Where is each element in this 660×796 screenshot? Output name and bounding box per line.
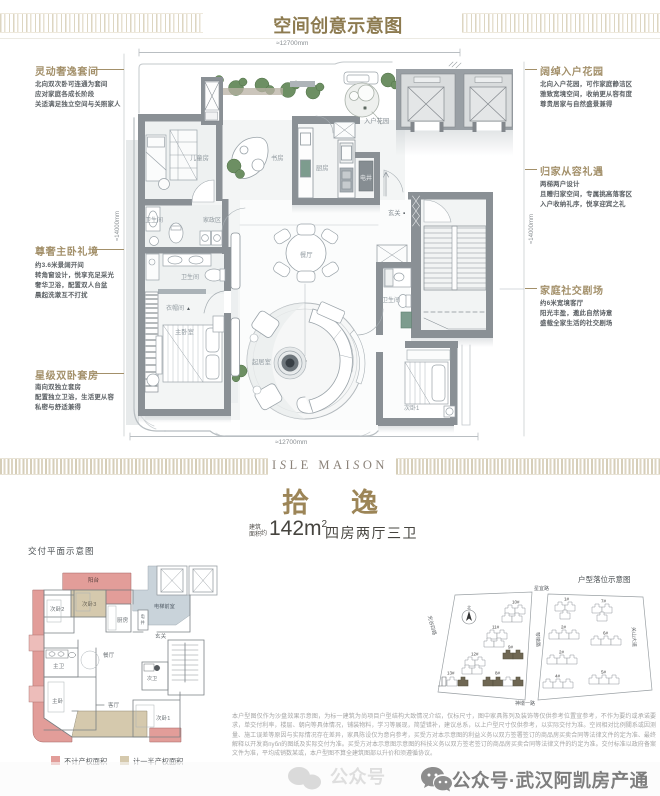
svg-text:电井: 电井 [360,174,372,182]
svg-text:次卧3: 次卧3 [82,600,96,608]
svg-text:12#: 12# [471,652,479,657]
svg-text:主卧室: 主卧室 [175,327,194,336]
svg-text:主卫: 主卫 [53,662,65,670]
svg-text:家政区: 家政区 [203,216,221,224]
svg-text:次卫: 次卫 [147,675,157,682]
svg-text:卫生间: 卫生间 [145,216,163,224]
svg-text:北: 北 [467,604,471,610]
svg-text:关山大道: 关山大道 [630,627,638,647]
svg-text:玄关: 玄关 [155,632,167,640]
svg-text:7#: 7# [601,599,607,604]
svg-text:厨房: 厨房 [117,616,129,624]
svg-text:入户花园: 入户花园 [364,116,389,125]
svg-text:光谷四路: 光谷四路 [426,615,438,636]
svg-text:次卧1: 次卧1 [404,404,420,412]
svg-text:9#: 9# [508,645,514,650]
svg-text:电梯前室: 电梯前室 [154,602,175,610]
svg-text:厨房: 厨房 [316,163,329,172]
svg-text:主卧: 主卧 [52,697,64,705]
svg-text:神墩一路: 神墩一路 [515,700,535,707]
svg-text:次卧2: 次卧2 [50,605,64,613]
svg-text:1#: 1# [564,597,570,602]
svg-text:玄关: 玄关 [388,208,401,217]
svg-text:6#: 6# [603,631,609,636]
svg-text:客厅: 客厅 [108,701,120,709]
svg-text:餐厅: 餐厅 [103,651,115,659]
svg-text:起居室: 起居室 [252,357,271,366]
svg-text:11#: 11# [492,625,500,630]
svg-text:▲: ▲ [186,306,191,312]
svg-text:8#: 8# [495,671,501,676]
svg-text:次卧1: 次卧1 [156,714,170,722]
svg-text:5#: 5# [601,670,607,675]
svg-text:卫生间: 卫生间 [181,273,199,281]
svg-text:餐厅: 餐厅 [300,250,313,259]
svg-text:▪: ▪ [403,210,405,217]
svg-text:13#: 13# [447,671,455,676]
svg-text:2#: 2# [559,650,565,655]
svg-text:衣帽间: 衣帽间 [166,304,184,312]
svg-text:儿童房: 儿童房 [190,153,209,162]
svg-text:卫生间: 卫生间 [382,296,400,304]
svg-text:书房: 书房 [271,153,284,162]
svg-text:阳台: 阳台 [88,576,100,584]
svg-text:电: 电 [141,613,146,619]
svg-text:星宜路: 星宜路 [534,585,549,592]
svg-text:琴墩路: 琴墩路 [534,632,542,647]
svg-text:4#: 4# [555,674,561,679]
svg-text:10#: 10# [512,600,520,605]
svg-text:井: 井 [141,619,146,626]
svg-text:2#: 2# [561,625,567,630]
